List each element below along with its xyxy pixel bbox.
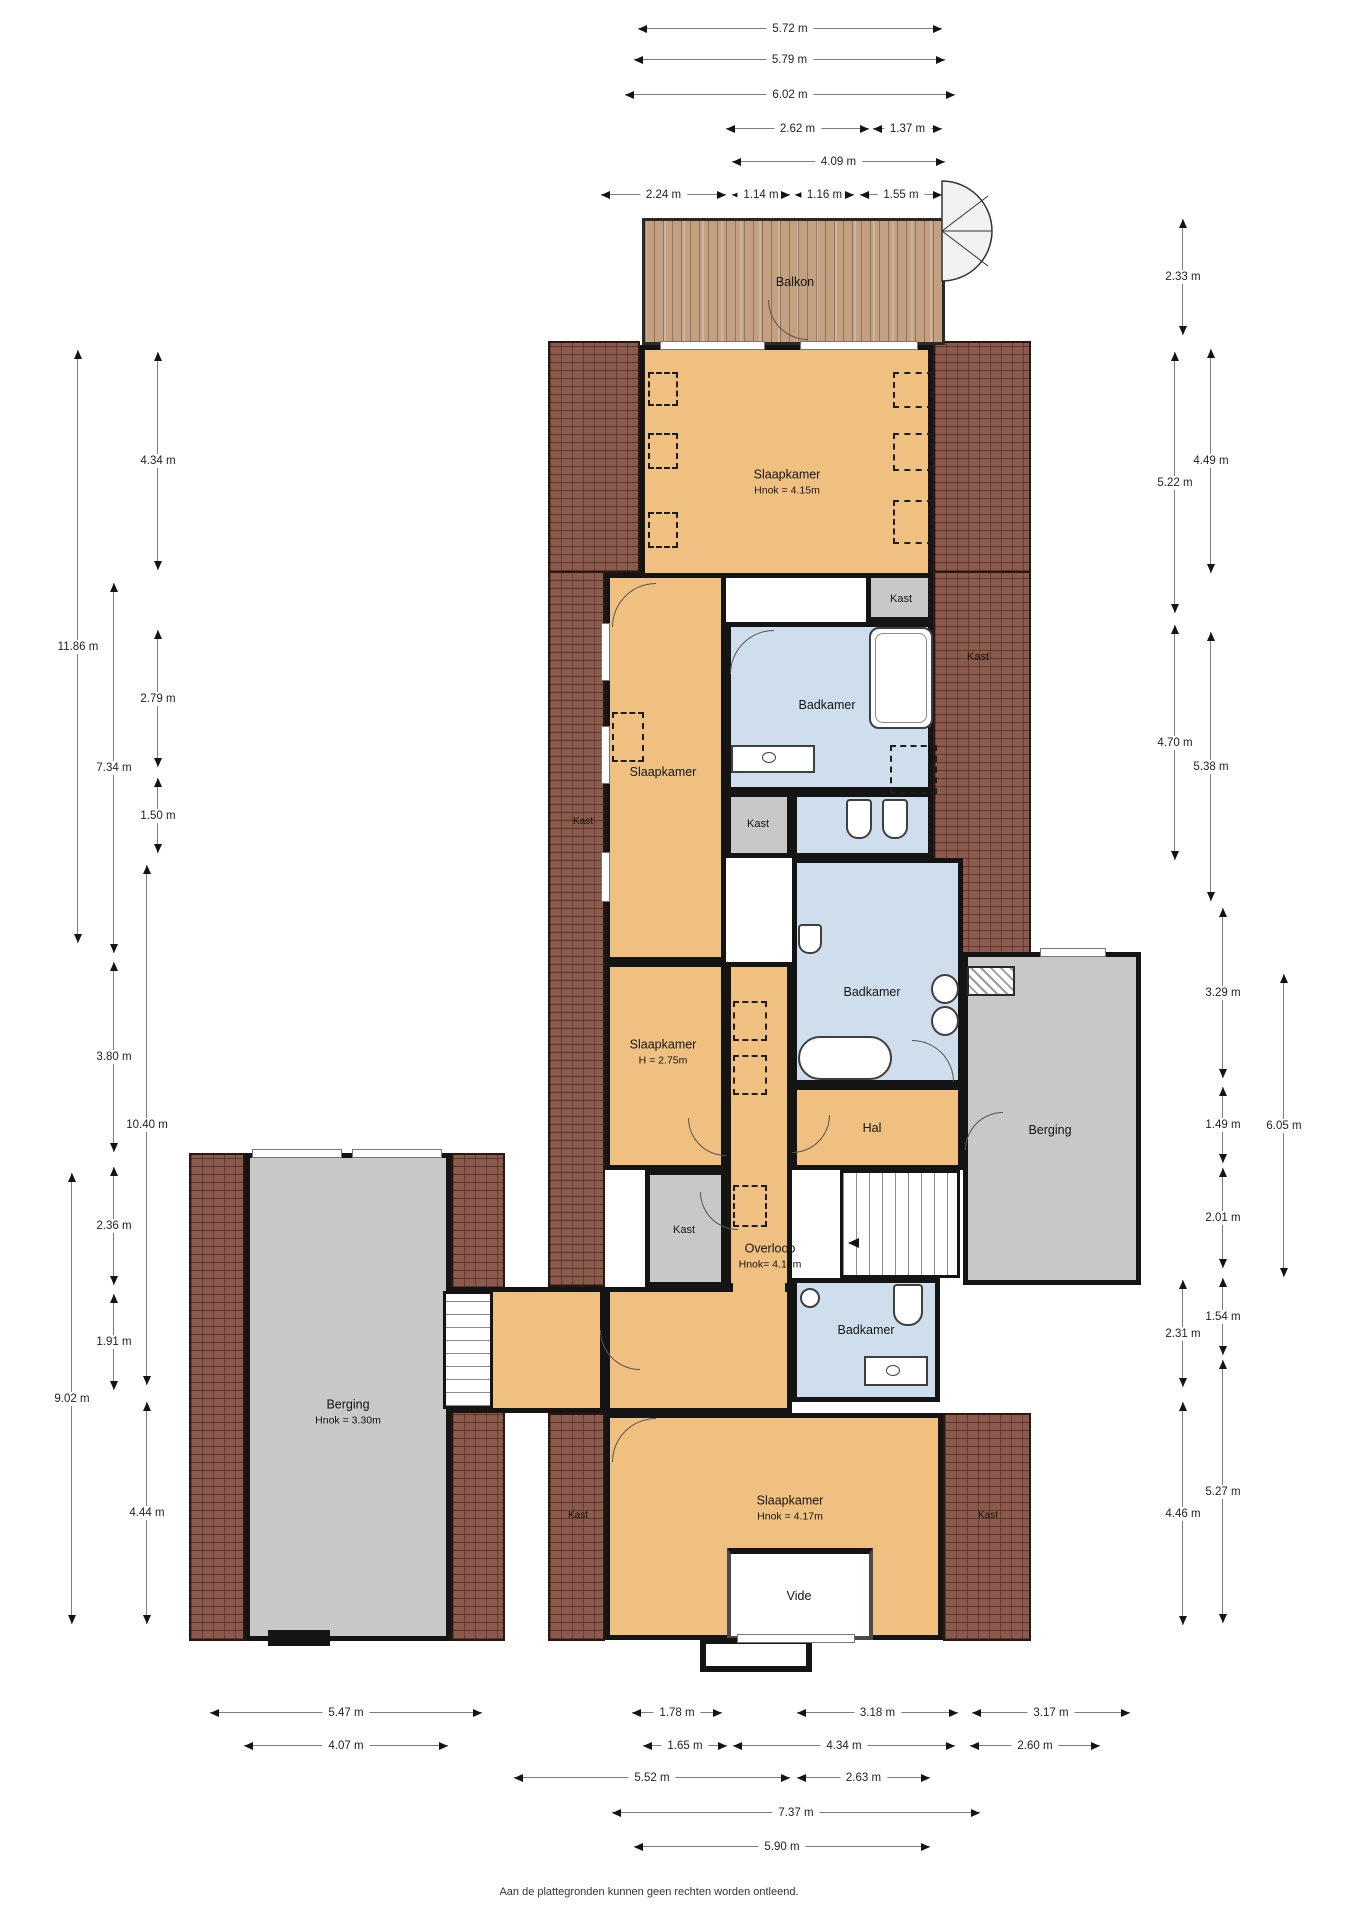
skylight [733,1185,767,1227]
dimension: 3.29 m [1222,908,1223,1078]
dimension: 5.22 m [1174,352,1175,613]
dimension: 3.17 m [972,1712,1130,1713]
dimension: 4.09 m [732,161,945,162]
freestanding-bathtub [798,1036,892,1080]
connector-staircase [443,1291,493,1409]
label-vide: Vide [787,1587,812,1605]
dimension: 4.49 m [1210,349,1211,573]
dimension: 11.86 m [77,350,78,943]
label-slaapkamer-3: SlaapkamerH = 2.75m [630,1035,697,1068]
dimension: 10.40 m [146,865,147,1385]
window [660,341,765,350]
dimension: 5.79 m [634,59,945,60]
dimension: 6.02 m [625,94,955,95]
label-kast-a: Kast [890,592,912,608]
skylight [733,1001,767,1041]
label-badkamer-3: Badkamer [838,1321,895,1339]
skylight [893,433,933,471]
label-berging-right: Berging [1028,1121,1071,1139]
window [737,1634,855,1643]
dimension: 1.50 m [157,778,158,853]
skylight [612,712,644,762]
dimension: 3.80 m [113,962,114,1152]
brick-wall-bottom-left [548,1413,605,1641]
dimension: 5.90 m [634,1846,930,1847]
skylight [893,500,933,544]
dimension: 2.79 m [157,630,158,767]
dimension: 2.62 m [726,128,869,129]
dimension: 4.70 m [1174,625,1175,860]
toilet-1 [846,799,872,839]
shower-area [890,745,937,794]
dimension: 4.46 m [1182,1402,1183,1625]
corridor-junction [733,1282,785,1298]
label-badkamer-1: Badkamer [799,696,856,714]
dimension: 1.54 m [1222,1278,1223,1355]
dimension: 5.52 m [514,1777,790,1778]
label-kast-b: Kast [747,817,769,833]
skylight [648,372,678,406]
dimension: 5.47 m [210,1712,482,1713]
dimension: 4.44 m [146,1402,147,1624]
dimension: 2.24 m [601,194,726,195]
dimension: 2.36 m [113,1167,114,1285]
window [352,1149,442,1158]
brick-wall-bottom-right [943,1413,1031,1641]
dimension: 2.01 m [1222,1168,1223,1268]
label-kast-bottom-right: Kast [978,1509,998,1524]
floorplan-page: Balkon SlaapkamerHnok = 4.15m Kast Kast … [0,0,1358,1920]
dimension: 7.37 m [612,1812,980,1813]
hatched-area [967,966,1015,996]
dimension: 1.65 m [643,1745,727,1746]
brick-wall-leftwing-left [189,1153,245,1641]
skylight [893,372,933,408]
shower-head [800,1288,820,1308]
dimension: 1.78 m [632,1712,722,1713]
dimension: 1.49 m [1222,1087,1223,1163]
window [1040,948,1106,957]
dimension: 3.18 m [797,1712,958,1713]
disclaimer-text: Aan de plattegronden kunnen geen rechten… [0,1886,1298,1898]
label-berging-left: BergingHnok = 3.30m [315,1395,381,1428]
label-kast-roof-right: Kast [967,650,989,666]
dimension: 5.27 m [1222,1360,1223,1623]
toilet-3 [893,1284,923,1326]
label-overloop: OverloopHnok= 4.12m [739,1239,802,1272]
dimension: 1.91 m [113,1294,114,1390]
dimension: 1.16 m [795,194,854,195]
window [800,341,918,350]
label-slaapkamer-2: Slaapkamer [630,763,697,781]
skylight [733,1055,767,1095]
entry-step [700,1638,812,1672]
basin-bowl-1 [762,752,776,763]
dimension: 4.07 m [244,1745,448,1746]
jacuzzi-bathtub [869,627,933,729]
label-badkamer-2: Badkamer [844,983,901,1001]
skylight [648,512,678,548]
dimension: 2.31 m [1182,1280,1183,1387]
main-staircase [840,1170,960,1278]
dimension: 4.34 m [733,1745,955,1746]
dimension: 9.02 m [71,1173,72,1624]
spiral-staircase [930,176,1010,286]
window [601,623,610,681]
dimension: 5.72 m [638,28,942,29]
dimension: 7.34 m [113,583,114,953]
brick-wall-top-left [548,341,640,573]
label-slaapkamer-1: SlaapkamerHnok = 4.15m [754,465,821,498]
label-slaapkamer-4: SlaapkamerHnok = 4.17m [757,1491,824,1524]
skylight [648,433,678,469]
dimension: 1.14 m [732,194,790,195]
label-balkon: Balkon [776,273,814,291]
room-slaapkamer-1 [640,345,933,578]
dimension: 6.05 m [1283,974,1284,1277]
wall-segment [268,1630,330,1646]
dimension: 1.37 m [873,128,942,129]
bidet [798,924,822,954]
dimension: 5.38 m [1210,632,1211,901]
dimension: 2.33 m [1182,219,1183,335]
window [601,852,610,902]
basin-bowl-3 [886,1365,900,1376]
label-kast-roof-left: Kast [573,815,593,830]
round-sink-2 [931,1006,959,1036]
dimension: 2.60 m [970,1745,1100,1746]
toilet-2 [882,799,908,839]
label-kast-c: Kast [673,1223,695,1239]
round-sink-1 [931,974,959,1004]
dimension: 2.63 m [797,1777,930,1778]
label-kast-bottom-left: Kast [568,1509,588,1524]
label-hal: Hal [863,1119,882,1137]
brick-wall-top-right [933,341,1031,573]
staircase-direction-arrow [848,1238,859,1248]
window [601,726,610,784]
brick-wall-mid-left [548,571,605,1287]
window [252,1149,342,1158]
dimension: 4.34 m [157,352,158,570]
